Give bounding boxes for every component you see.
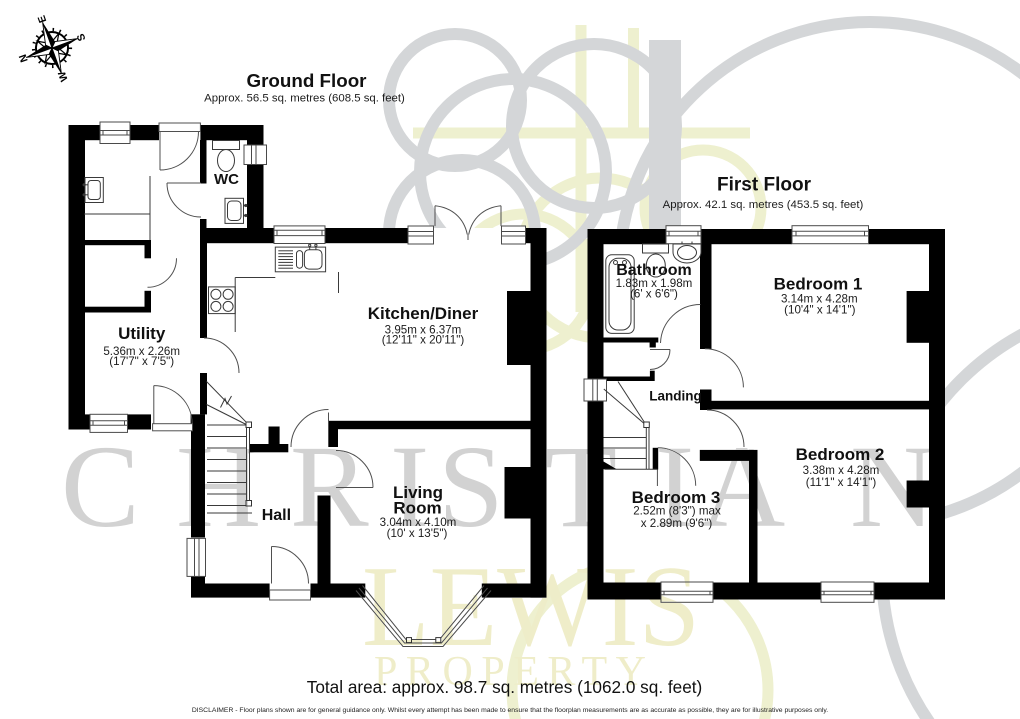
svg-text:Bedroom 2: Bedroom 2 [796,445,885,464]
svg-text:x 2.89m (9'6"): x 2.89m (9'6") [641,517,713,530]
svg-text:DISCLAIMER - Floor plans show: DISCLAIMER - Floor plans shown are for g… [192,707,828,714]
svg-text:Utility: Utility [118,324,166,343]
svg-text:(12'11" x 20'11"): (12'11" x 20'11") [382,334,465,347]
svg-text:Kitchen/Diner: Kitchen/Diner [368,304,479,323]
svg-text:Approx. 42.1 sq. metres (453.5: Approx. 42.1 sq. metres (453.5 sq. feet) [663,199,864,211]
svg-text:First Floor: First Floor [717,175,812,196]
svg-text:(10' x 13'5"): (10' x 13'5") [387,527,448,540]
svg-text:Ground Floor: Ground Floor [247,70,368,91]
svg-text:(17'7" x 7'5"): (17'7" x 7'5") [109,355,174,368]
svg-text:WC: WC [214,171,239,188]
svg-text:(6' x 6'6"): (6' x 6'6") [630,288,678,301]
svg-text:Bedroom 1: Bedroom 1 [774,275,863,294]
svg-text:Landing: Landing [649,389,702,404]
svg-text:(11'1" x 14'1"): (11'1" x 14'1") [806,476,877,489]
svg-text:Total area: approx. 98.7 sq. m: Total area: approx. 98.7 sq. metres (106… [307,677,703,697]
svg-text:Approx. 56.5 sq. metres (608.5: Approx. 56.5 sq. metres (608.5 sq. feet) [204,93,405,105]
svg-text:(10'4" x 14'1"): (10'4" x 14'1") [784,304,855,317]
svg-text:Room: Room [393,499,441,518]
svg-text:Hall: Hall [262,507,291,524]
svg-text:2.52m (8'3") max: 2.52m (8'3") max [633,505,721,518]
